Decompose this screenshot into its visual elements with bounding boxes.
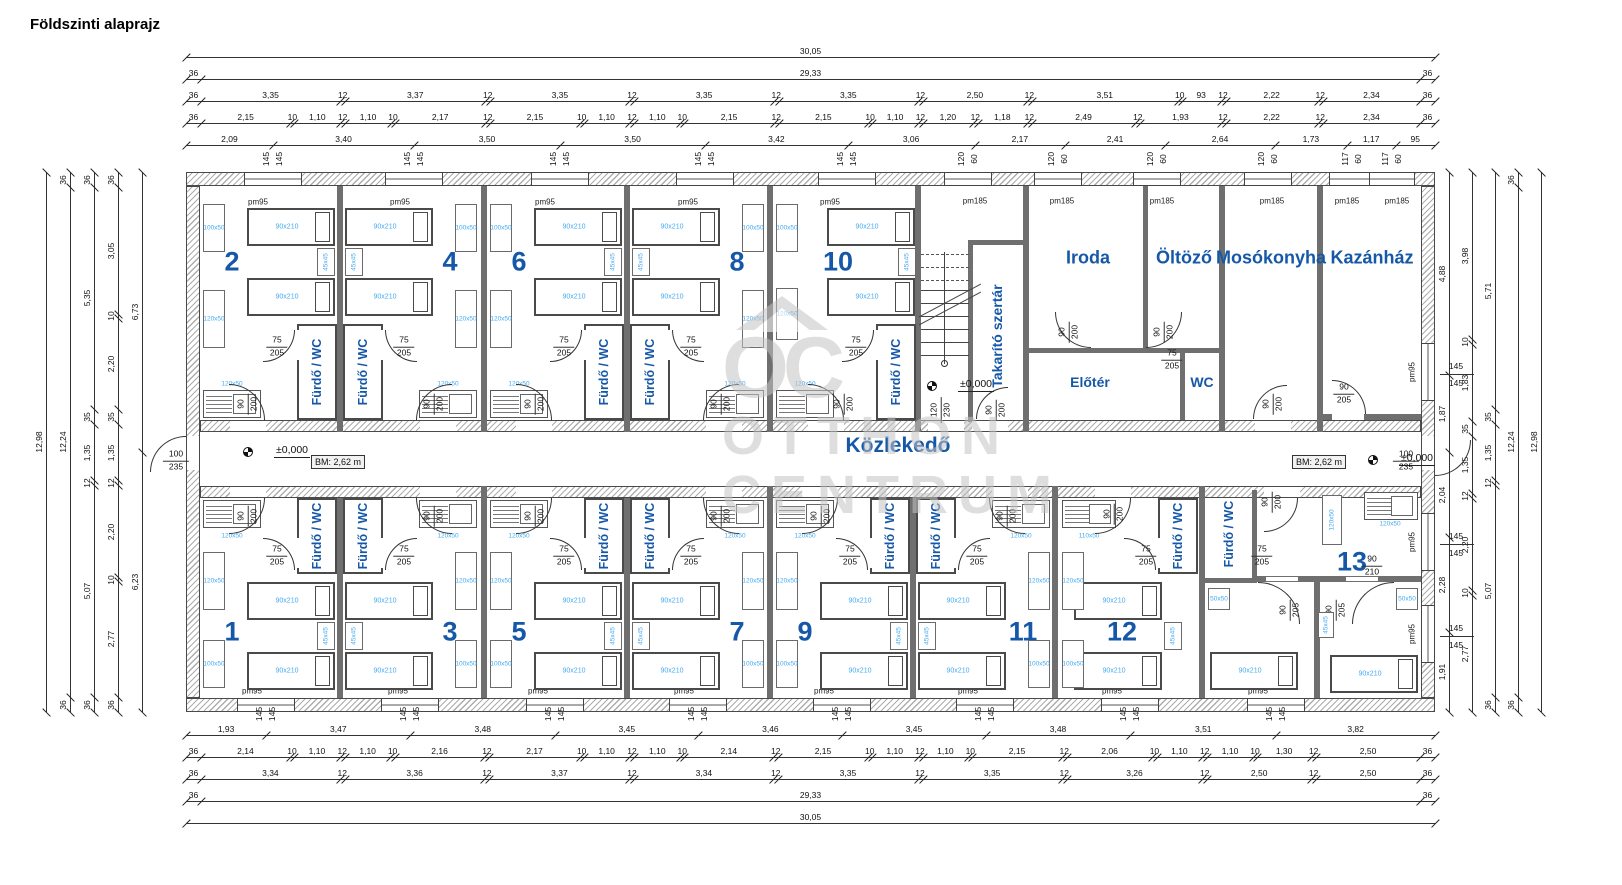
dimension-value: 12: [482, 768, 491, 778]
window-tag-pm95: pm95: [1408, 362, 1417, 382]
door-opening: [868, 538, 874, 568]
window: [381, 698, 439, 712]
pillow: [413, 212, 428, 242]
dimension-value: 36: [189, 68, 198, 78]
window-size: 145: [686, 707, 696, 721]
dimension-value: 2,22: [1263, 112, 1280, 122]
dimension-value: 2,28: [1437, 577, 1447, 594]
bed-size: 90x210: [276, 598, 299, 605]
room-label-wc: WC: [1190, 374, 1213, 390]
door-dimension: 75205: [1161, 349, 1182, 372]
dimension-value: 12: [627, 768, 636, 778]
window-size: 145: [1449, 623, 1463, 633]
window-size: 117: [1340, 152, 1350, 166]
door-dimension: 75205: [553, 336, 574, 359]
pillow: [1398, 659, 1413, 689]
bathroom-label: Fürdő / WC: [1171, 503, 1185, 570]
dimension-value: 5,71: [1483, 283, 1493, 300]
dimension-value: 1,30: [1276, 746, 1293, 756]
window-size: 145: [843, 707, 853, 721]
stove: [779, 393, 805, 415]
furniture-size: 120x50: [776, 578, 797, 585]
dimension-value: 3,36: [406, 768, 423, 778]
pillow: [888, 656, 903, 686]
dimension-value: 1,10: [309, 112, 326, 122]
dimension-value: 1,10: [886, 746, 903, 756]
dimension-value: 5,07: [1483, 583, 1493, 600]
level-marker-icon: [927, 381, 937, 391]
partition-wall: [1028, 348, 1145, 353]
window-size: 145: [1449, 378, 1463, 388]
furniture-size: 45x45: [323, 253, 330, 271]
dimension-value: 1,35: [1483, 444, 1493, 461]
level-marker-icon: [243, 447, 253, 457]
window-size: 120: [1256, 152, 1266, 166]
door-dimension: 90200: [833, 393, 856, 414]
window: [676, 172, 734, 186]
dimension-line: [186, 145, 1435, 146]
dimension-value: 3,37: [551, 768, 568, 778]
furniture-size: 45x45: [610, 627, 617, 645]
furniture-size: 120x50: [490, 316, 511, 323]
dimension-value: 1,93: [218, 724, 235, 734]
door-dimension: 75205: [393, 336, 414, 359]
dimension-value: 1,93: [1172, 112, 1189, 122]
dimension-value: 36: [58, 700, 68, 709]
window-size: 145: [1449, 548, 1463, 558]
dimension-value: 3,06: [903, 134, 920, 144]
pillow: [986, 656, 1001, 686]
window: [244, 172, 302, 186]
dimension-value: 93: [1196, 90, 1205, 100]
furniture-size: 100x50: [203, 225, 224, 232]
sink: [736, 394, 759, 414]
door-opening: [972, 421, 1008, 431]
bed-size: 90x210: [849, 598, 872, 605]
partition-wall: [1199, 486, 1205, 698]
window-tag-pm95: pm95: [535, 198, 555, 207]
window-size: 145: [1131, 707, 1141, 721]
dimension-value: 12: [771, 768, 780, 778]
dimension-value: 12: [1218, 112, 1227, 122]
door-opening: [420, 421, 456, 431]
dimension-value: 1,10: [1222, 746, 1239, 756]
dimension-value: 10: [577, 746, 586, 756]
door-dimension: 90200: [1262, 393, 1285, 414]
window: [1421, 343, 1435, 401]
window-size: 145: [699, 707, 709, 721]
bed-size: 90x210: [276, 668, 299, 675]
window-tag-pm95: pm95: [678, 198, 698, 207]
room-number: 10: [823, 247, 853, 278]
room-label-kozlekedo: Közlekedő: [845, 434, 950, 458]
window-size: 145: [1277, 707, 1287, 721]
dimension-value: 2,15: [1009, 746, 1026, 756]
dimension-value: 12,24: [58, 431, 68, 452]
dimension-value: 1,91: [1437, 664, 1447, 681]
dimension-value: 12,24: [1506, 431, 1516, 452]
furniture-size: 120x50: [203, 316, 224, 323]
door-dimension: 90200: [237, 393, 260, 414]
partition-wall: [1023, 186, 1029, 432]
dimension-value: 2,50: [1251, 768, 1268, 778]
dimension-value: 36: [1423, 90, 1432, 100]
furniture-size: 100x50: [490, 225, 511, 232]
furniture-size: 100x50: [455, 225, 476, 232]
pillow: [315, 586, 330, 616]
pillow: [700, 282, 715, 312]
dimension-value: 2,06: [1101, 746, 1118, 756]
window-size: 145: [693, 152, 703, 166]
window-tag-pm185: pm185: [1335, 197, 1359, 206]
door-opening: [706, 421, 742, 431]
bed-size: 90x210: [856, 294, 879, 301]
dimension-value: 12: [1316, 112, 1325, 122]
pillow: [315, 282, 330, 312]
door-dimension: 90200: [710, 505, 733, 526]
window-size: 120: [1046, 152, 1056, 166]
dimension-value: 3,47: [330, 724, 347, 734]
window-size: 117: [1380, 152, 1390, 166]
dimension-value: 2,14: [237, 746, 254, 756]
dimension-value: 1,17: [1363, 134, 1380, 144]
dimension-value: 12: [1060, 768, 1069, 778]
partition-wall: [1252, 490, 1257, 582]
door-dimension: 90200: [1103, 503, 1126, 524]
window: [531, 172, 589, 186]
dimension-value: 3,50: [624, 134, 641, 144]
dimension-value: 3,34: [262, 768, 279, 778]
dimension-value: 12: [1309, 746, 1318, 756]
pillow: [413, 586, 428, 616]
door-dimension: 75205: [266, 545, 287, 568]
door-dimension: 75205: [839, 545, 860, 568]
room-number: 5: [511, 617, 526, 648]
door-dimension: 90200: [996, 505, 1019, 526]
bathroom-label: Fürdő / WC: [356, 503, 370, 570]
door-opening: [230, 487, 266, 497]
pillow: [1142, 586, 1157, 616]
partition-wall: [968, 240, 1028, 245]
furniture-size: 45x45: [1323, 616, 1330, 634]
window-size: 60: [1158, 154, 1168, 163]
furniture-size: 100x50: [1062, 661, 1083, 668]
window-size: 145: [398, 707, 408, 721]
window-size: 145: [706, 152, 716, 166]
dimension-line: [1440, 374, 1474, 375]
window: [1369, 172, 1415, 186]
bathroom-label: Fürdő / WC: [310, 339, 324, 406]
window-size: 145: [274, 152, 284, 166]
room-number: 6: [511, 247, 526, 278]
window-size: 120: [1145, 152, 1155, 166]
entrance-door-dimension: 100235: [1393, 450, 1419, 473]
room-number: 2: [224, 247, 239, 278]
room-label-eloter: Előtér: [1070, 374, 1110, 390]
window: [944, 172, 992, 186]
window-tag-pm95: pm95: [1408, 532, 1417, 552]
window-size: 60: [969, 154, 979, 163]
dimension-value: 10: [1150, 746, 1159, 756]
floor-plan-canvas: Földszinti alaprajz 30,053629,3336363,35…: [0, 0, 1622, 885]
window: [956, 698, 1014, 712]
dimension-value: 3,40: [335, 134, 352, 144]
dimension-value: 1,18: [994, 112, 1011, 122]
furniture-size: 120x50: [1062, 578, 1083, 585]
window: [1101, 698, 1159, 712]
door-dimension: 75205: [680, 336, 701, 359]
dimension-value: 12: [971, 112, 980, 122]
dimension-line: [186, 79, 1435, 80]
window-tag-pm95: pm95: [390, 198, 410, 207]
door-dimension: 90200: [1058, 321, 1081, 342]
room-height-badge: BM: 2,62 m: [311, 455, 365, 469]
dimension-value: 10: [388, 746, 397, 756]
furniture-size: 45x45: [351, 627, 358, 645]
dimension-value: 36: [1423, 790, 1432, 800]
dimension-value: 30,05: [800, 812, 821, 822]
dimension-line: [1541, 172, 1542, 712]
dimension-value: 10: [577, 112, 586, 122]
door-opening: [1333, 415, 1363, 419]
dimension-value: 12: [82, 479, 92, 488]
window: [813, 698, 871, 712]
door-opening: [1156, 538, 1162, 568]
level-value: ±0,000: [274, 444, 310, 458]
window-size: 60: [1059, 154, 1069, 163]
dimension-value: 2,34: [1363, 90, 1380, 100]
dimension-value: 2,41: [1107, 134, 1124, 144]
partition-wall: [1148, 348, 1224, 353]
dimension-line: [186, 101, 1435, 102]
door-opening: [1346, 577, 1378, 581]
door-dimension: 120230: [930, 397, 953, 423]
furniture-size: 45x45: [610, 253, 617, 271]
furniture-size: 120x50: [742, 316, 763, 323]
dimension-value: 10: [388, 112, 397, 122]
dimension-value: 36: [1506, 700, 1516, 709]
bed-size: 90x210: [374, 294, 397, 301]
window: [1421, 513, 1435, 571]
window-tag-pm185: pm185: [1050, 197, 1074, 206]
dimension-value: 1,73: [1303, 134, 1320, 144]
door-opening: [295, 330, 301, 360]
dimension-value: 2,09: [221, 134, 238, 144]
pillow: [888, 586, 903, 616]
level-marker-icon: [1368, 455, 1378, 465]
door-dimension: 90200: [423, 393, 446, 414]
bed-size: 90x210: [947, 598, 970, 605]
dimension-line: [186, 823, 1435, 824]
partition-wall: [481, 486, 487, 698]
furniture-size: 120x50: [490, 578, 511, 585]
door-dimension: 75205: [266, 336, 287, 359]
window-size: 145: [561, 152, 571, 166]
door-opening: [379, 330, 385, 360]
dimension-value: 10: [678, 746, 687, 756]
partition-wall: [767, 486, 773, 698]
dimension-value: 3,35: [262, 90, 279, 100]
pillow: [602, 586, 617, 616]
dimension-value: 2,50: [967, 90, 984, 100]
stove: [1065, 503, 1089, 525]
partition-wall: [1052, 486, 1058, 698]
dimension-value: 2,17: [526, 746, 543, 756]
furniture-size: 120x50: [455, 316, 476, 323]
sink: [1391, 496, 1413, 516]
bed-size: 90x210: [276, 294, 299, 301]
dimension-value: 10: [1460, 337, 1470, 346]
door-dimension: 75205: [845, 336, 866, 359]
dimension-value: 12,98: [34, 431, 44, 452]
furniture-size: 45x45: [896, 627, 903, 645]
dimension-value: 1,10: [309, 746, 326, 756]
dimension-value: 12: [771, 746, 780, 756]
door-dimension: 75205: [553, 545, 574, 568]
window-size: 145: [986, 707, 996, 721]
window-tag-pm95: pm95: [248, 198, 268, 207]
dimension-value: 3,48: [1050, 724, 1067, 734]
door-dimension: 75205: [1251, 545, 1272, 568]
dimension-value: 1,87: [1437, 406, 1447, 423]
door-opening: [1266, 577, 1298, 581]
window-size: 60: [1353, 154, 1363, 163]
dimension-value: 3,05: [106, 242, 116, 259]
room-label-iroda: Iroda: [1066, 248, 1110, 269]
dimension-line: [186, 57, 1435, 58]
door-dimension: 90205: [1333, 383, 1354, 406]
dimension-value: 12: [1060, 746, 1069, 756]
bed-size: 90x210: [563, 294, 586, 301]
partition-wall: [481, 186, 487, 432]
sink: [449, 394, 472, 414]
dimension-value: 3,37: [407, 90, 424, 100]
dimension-value: 3,45: [619, 724, 636, 734]
dimension-line: [118, 172, 119, 712]
window: [1247, 698, 1305, 712]
pillow: [895, 212, 910, 242]
dimension-value: 10: [106, 311, 116, 320]
window-tag-pm185: pm185: [1385, 197, 1409, 206]
furniture-size: 45x45: [323, 627, 330, 645]
window: [818, 172, 876, 186]
dimension-line: [186, 123, 1435, 124]
dimension-value: 36: [106, 175, 116, 184]
dimension-value: 3,48: [474, 724, 491, 734]
bathroom-label: Fürdő / WC: [883, 503, 897, 570]
window-size: 145: [848, 152, 858, 166]
sink: [1022, 504, 1045, 524]
dimension-value: 10: [1460, 588, 1470, 597]
dimension-value: 3,51: [1096, 90, 1113, 100]
furniture-size: 50x50: [1210, 596, 1228, 603]
pillow: [986, 586, 1001, 616]
door-opening: [295, 538, 301, 568]
furniture-size: 45x45: [638, 627, 645, 645]
window: [1034, 172, 1082, 186]
dimension-value: 36: [1423, 68, 1432, 78]
dimension-value: 1,10: [359, 746, 376, 756]
dimension-value: 36: [1423, 768, 1432, 778]
dimension-line: [1440, 636, 1474, 637]
window: [237, 698, 295, 712]
window: [1133, 172, 1181, 186]
dimension-value: 2,50: [1360, 746, 1377, 756]
window-tag-pm185: pm185: [1150, 197, 1174, 206]
dimension-value: 3,35: [984, 768, 1001, 778]
dimension-value: 2,04: [1437, 487, 1447, 504]
window-size: 145: [548, 152, 558, 166]
door-dimension: 90200: [1153, 321, 1176, 342]
bed-size: 90x210: [947, 668, 970, 675]
furniture-size: 45x45: [638, 253, 645, 271]
bed-size: 90x210: [276, 224, 299, 231]
dimension-value: 5,35: [82, 290, 92, 307]
door-opening: [952, 538, 958, 568]
room-number: 1: [224, 617, 239, 648]
door-arc: [1258, 582, 1300, 624]
dimension-value: 10: [678, 112, 687, 122]
dimension-line: [1440, 544, 1474, 545]
dimension-line: [70, 172, 71, 712]
dimension-value: 12: [916, 112, 925, 122]
pillow: [315, 212, 330, 242]
bed-size: 90x210: [374, 224, 397, 231]
room-height-badge: BM: 2,62 m: [1292, 455, 1346, 469]
bed-size: 90x210: [661, 294, 684, 301]
dimension-value: 3,51: [1195, 724, 1212, 734]
dimension-value: 2,50: [1360, 768, 1377, 778]
partition-wall: [1364, 414, 1421, 420]
bathroom-label: Fürdő / WC: [889, 339, 903, 406]
bed-size: 90x210: [661, 598, 684, 605]
bed-size: 90x210: [661, 668, 684, 675]
window-size: 145: [1449, 361, 1463, 371]
dimension-value: 1,10: [1171, 746, 1188, 756]
dimension-line: [46, 172, 47, 712]
sink: [736, 504, 759, 524]
dimension-value: 1,10: [649, 112, 666, 122]
dimension-value: 3,26: [1126, 768, 1143, 778]
pillow: [602, 282, 617, 312]
dimension-value: 1,10: [598, 746, 615, 756]
furniture-size: 100x50: [490, 661, 511, 668]
door-dimension: 75205: [1135, 545, 1156, 568]
door-dimension: 75205: [393, 545, 414, 568]
window-tag-pm95: pm95: [820, 198, 840, 207]
window: [1421, 605, 1435, 663]
dimension-value: 12: [1483, 479, 1493, 488]
bed-size: 90x210: [1103, 668, 1126, 675]
dimension-value: 36: [189, 112, 198, 122]
window-size: 145: [556, 707, 566, 721]
entrance-door-arc: [150, 436, 186, 472]
dimension-value: 12: [771, 90, 780, 100]
dimension-value: 12: [482, 746, 491, 756]
level-value: ±0,000: [958, 378, 994, 392]
furniture-size: 100x50: [776, 225, 797, 232]
door-opening: [582, 330, 588, 360]
window-tag-pm185: pm185: [1260, 197, 1284, 206]
pillow: [700, 656, 715, 686]
bathroom-label: Fürdő / WC: [356, 339, 370, 406]
furniture-size: 120x50: [203, 578, 224, 585]
dimension-value: 12: [1025, 90, 1034, 100]
pillow: [602, 656, 617, 686]
pillow: [700, 586, 715, 616]
door-opening: [666, 538, 672, 568]
door-arc: [1264, 498, 1298, 532]
